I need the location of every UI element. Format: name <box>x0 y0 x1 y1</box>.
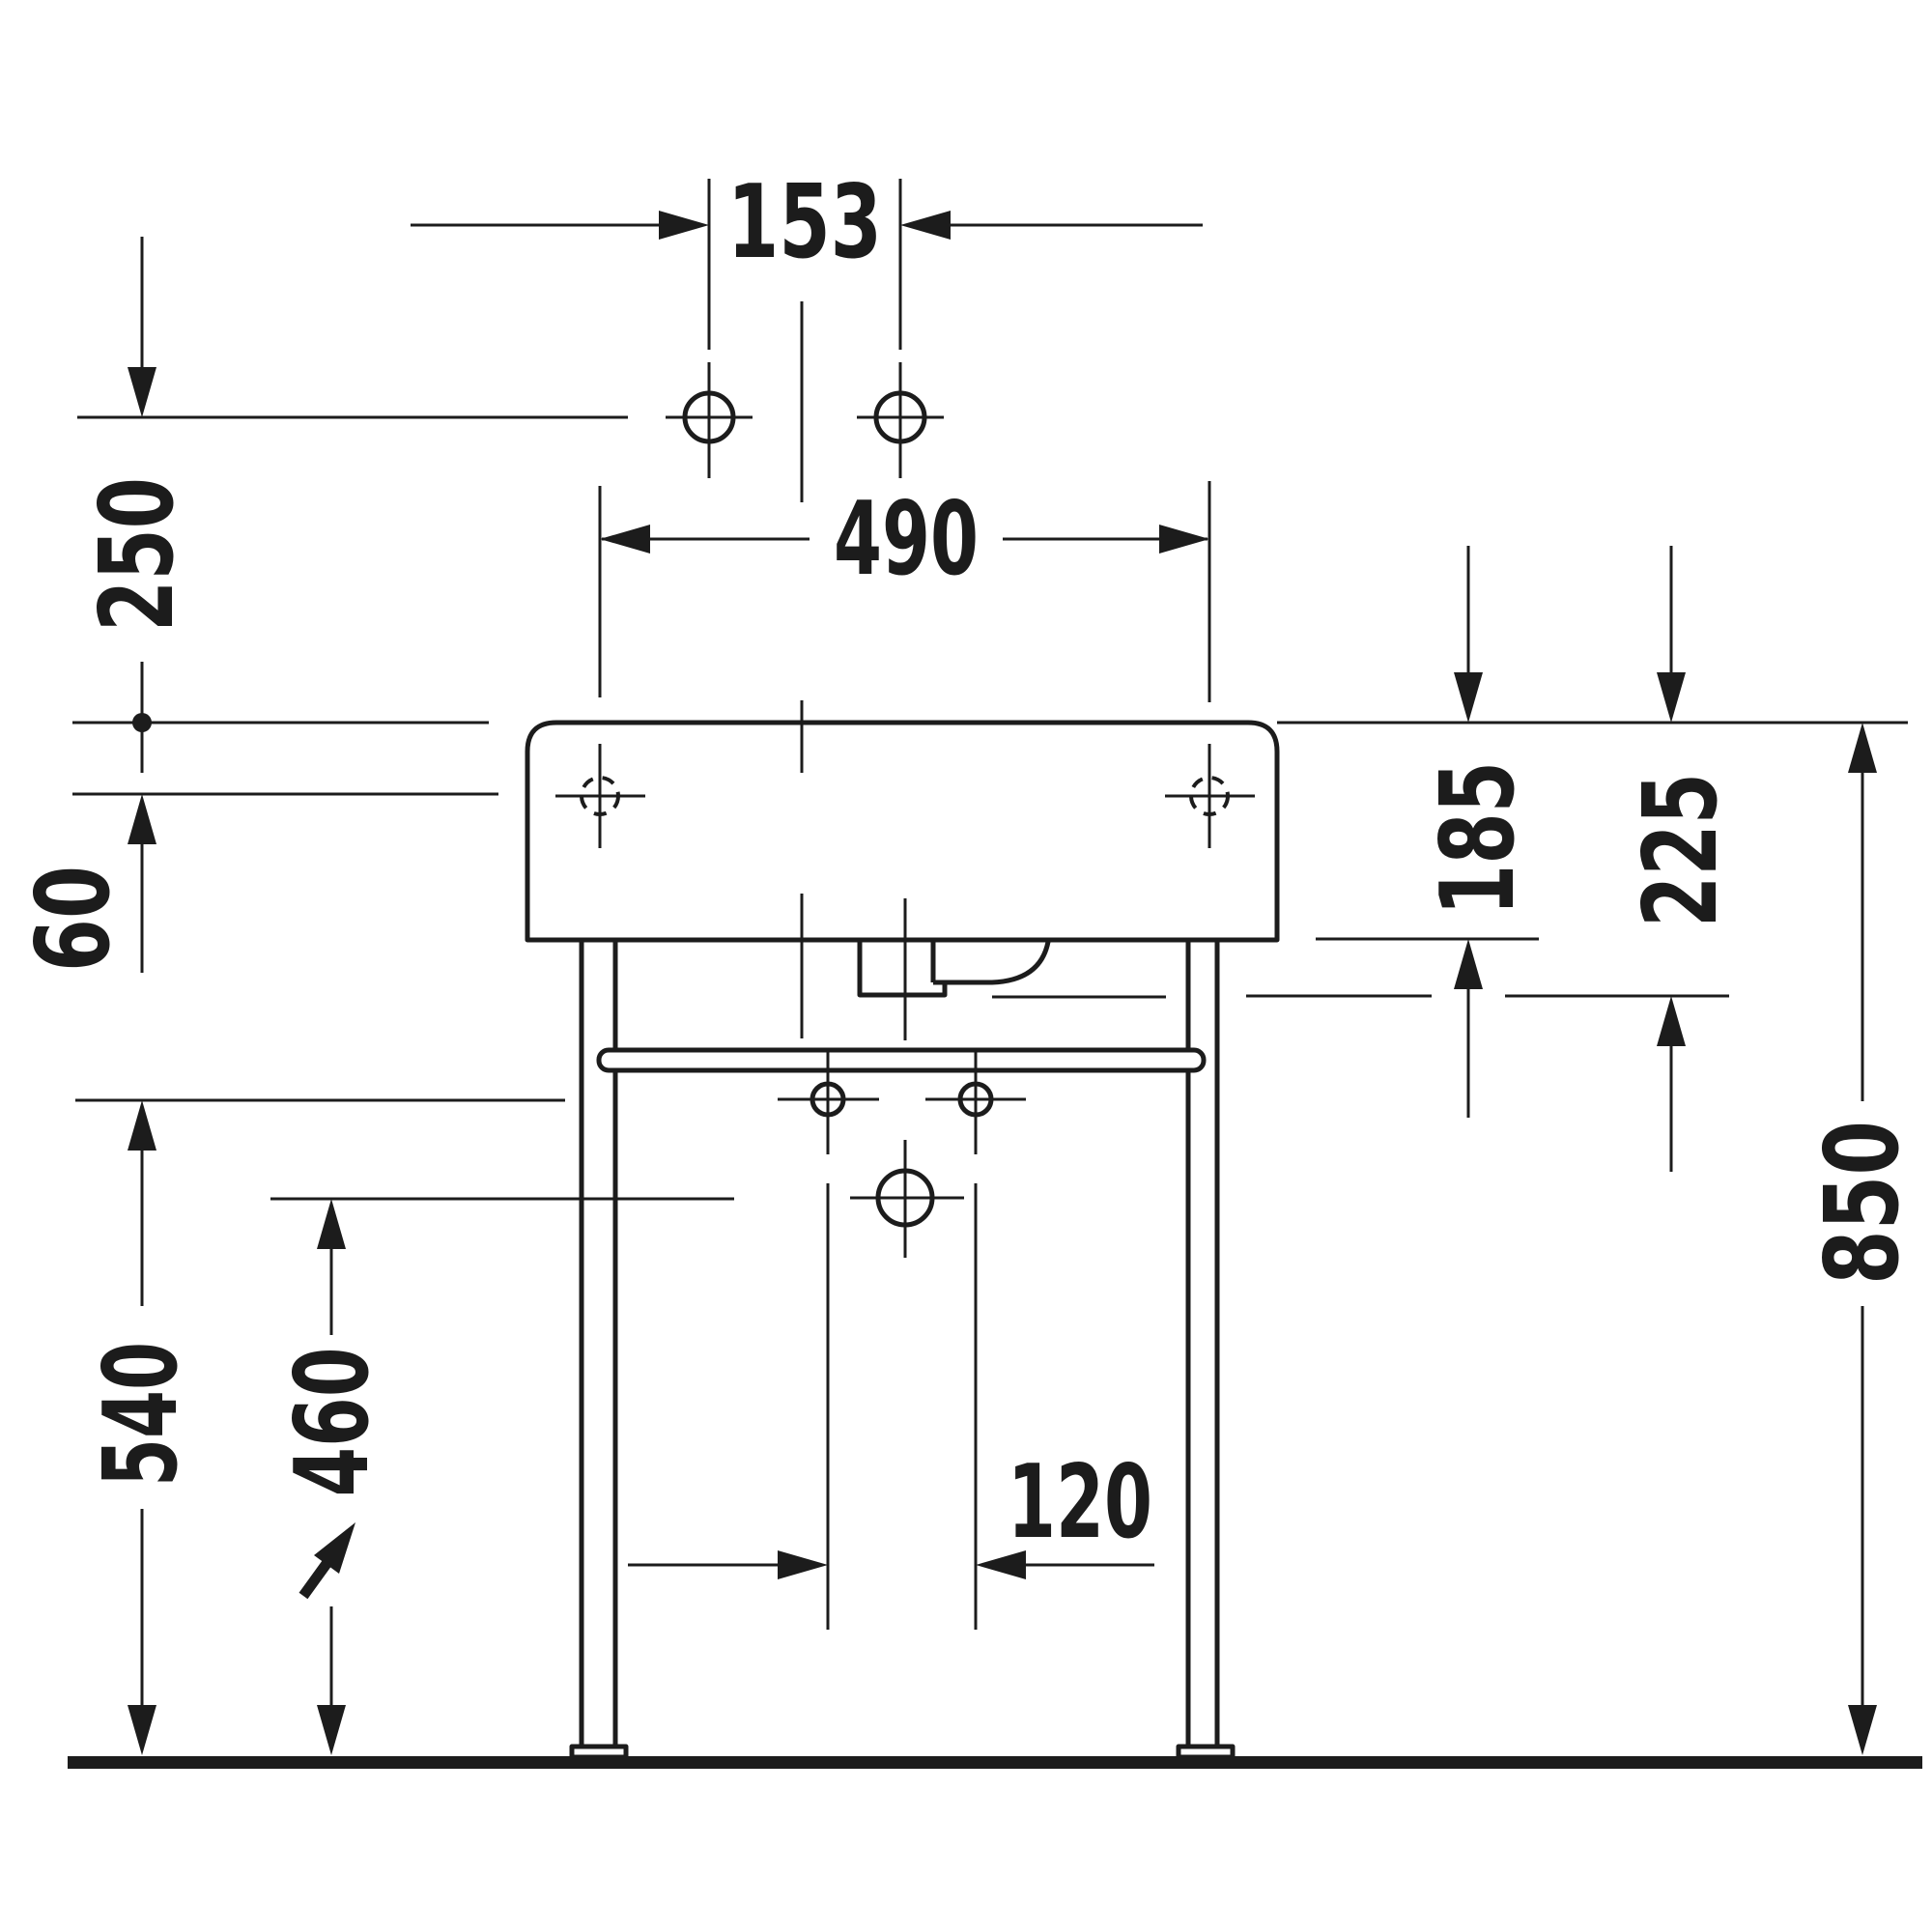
dim-120-extension-lines <box>828 1183 976 1630</box>
dim-850-label: 850 <box>1804 1121 1921 1285</box>
dim-185-rim-to-bottom-edge: 185 <box>1277 546 1908 1118</box>
faucet-hole-crosshairs <box>666 362 944 478</box>
dim-250-faucet-line-offset: 250 <box>72 237 628 773</box>
faucet-holes <box>666 362 944 478</box>
dim-250-down-arrowhead <box>128 367 156 417</box>
dim-225-down-arrowhead <box>1657 672 1686 723</box>
adjustable-height-arrow-icon <box>303 1522 355 1596</box>
dim-120-lower-hole-spacing: 120 <box>628 1183 1154 1630</box>
dim-490-right-arrowhead <box>1159 525 1209 554</box>
right-leg-foot <box>1179 1747 1233 1757</box>
left-leg-foot <box>572 1747 626 1757</box>
dim-153-faucet-hole-spacing: 153 <box>411 163 1203 350</box>
dim-850-rim-height: 850 <box>1804 723 1921 1755</box>
dim-460-up-arrowhead <box>317 1199 346 1249</box>
dim-490-mounting-hole-spacing: 490 <box>600 480 1209 702</box>
drain-spout-curve <box>933 942 1048 982</box>
towel-rail <box>599 1050 1204 1070</box>
dim-850-up-arrowhead <box>1848 723 1877 773</box>
dim-850-down-arrowhead <box>1848 1705 1877 1755</box>
dim-460-drain-outlet-height: 460 <box>270 1199 734 1755</box>
dim-60-up-arrowhead <box>128 794 156 844</box>
dim-185-label: 185 <box>1419 761 1537 916</box>
dim-490-left-arrowhead <box>600 525 650 554</box>
washbasin-dimension-diagram: 153 490 250 60 185 <box>0 0 1932 1932</box>
ground-line <box>68 1756 1922 1769</box>
basin-outline <box>527 723 1277 940</box>
dim-250-label: 250 <box>78 477 196 632</box>
dim-225-label: 225 <box>1622 773 1740 927</box>
dim-490-label: 490 <box>834 480 979 598</box>
dim-153-label: 153 <box>727 163 882 281</box>
dim-460-down-arrowhead <box>317 1705 346 1755</box>
dim-185-up-arrowhead <box>1454 939 1483 989</box>
dim-250-dot-terminator <box>132 713 152 732</box>
dim-153-right-arrowhead <box>900 211 951 240</box>
dim-153-left-arrowhead <box>659 211 709 240</box>
dim-120-label: 120 <box>1008 1443 1152 1561</box>
dim-60-rim-to-mounting-hole: 60 <box>14 794 498 973</box>
dim-60-label: 60 <box>14 866 132 972</box>
dim-225-up-arrowhead <box>1657 996 1686 1046</box>
dim-120-right-pointing-arrowhead <box>778 1550 828 1579</box>
washbasin-body <box>527 723 1277 997</box>
dim-460-label: 460 <box>273 1348 391 1497</box>
technical-drawing-page: 153 490 250 60 185 <box>0 0 1932 1932</box>
lower-holes <box>778 898 1026 1258</box>
dim-540-label: 540 <box>82 1342 200 1487</box>
dim-540-up-arrowhead <box>128 1100 156 1151</box>
dim-540-down-arrowhead <box>128 1705 156 1755</box>
adjustable-arrow-tail <box>303 1561 328 1596</box>
dim-185-down-arrowhead <box>1454 672 1483 723</box>
drain-pipe-crosshair <box>850 898 964 1258</box>
